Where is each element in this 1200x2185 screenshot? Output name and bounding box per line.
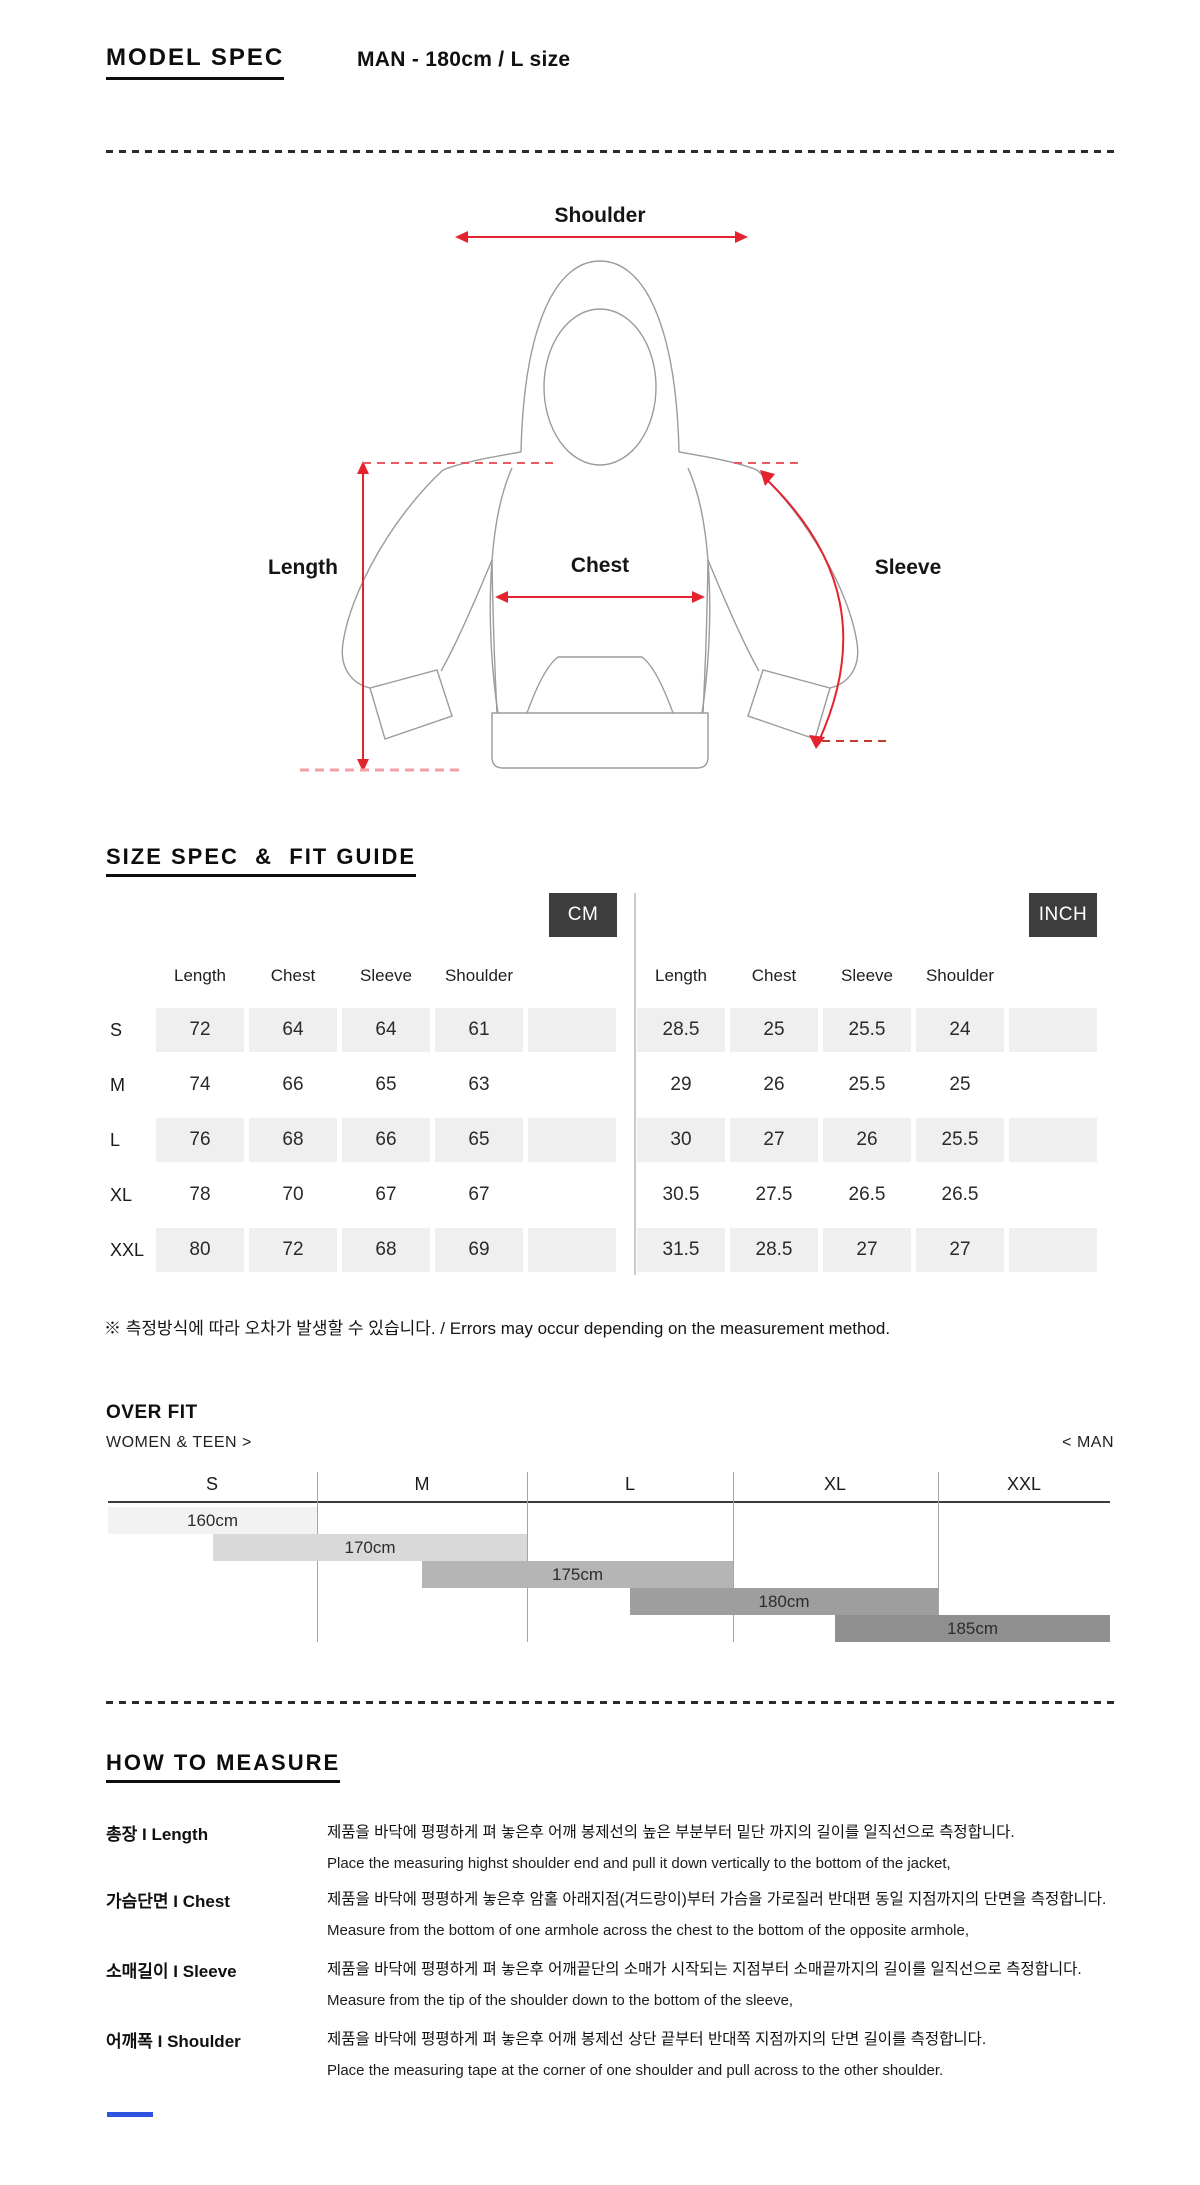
cell-empty (528, 1063, 616, 1107)
sleeve-arrow (764, 477, 843, 743)
fit-size-s: S (172, 1474, 252, 1495)
cell: 74 (156, 1063, 244, 1107)
cell: 68 (249, 1118, 337, 1162)
cell: 28.5 (637, 1008, 725, 1052)
row-label-m: M (110, 1063, 125, 1107)
length-label: Length (268, 556, 338, 579)
fit-bar-170cm: 170cm (213, 1534, 527, 1561)
model-subtitle: MAN - 180cm / L size (357, 48, 570, 72)
fit-chart-gridline (527, 1472, 528, 1642)
unit-badge-inch: INCH (1029, 893, 1097, 937)
table-row-inch: 28.5 25 25.5 24 (637, 1008, 1097, 1052)
fit-guide-left-label: WOMEN & TEEN > (106, 1434, 252, 1452)
table-row-cm: 78 70 67 67 (156, 1173, 616, 1217)
cell-empty (1009, 1118, 1097, 1162)
fit-guide-title: OVER FIT (106, 1402, 198, 1424)
measure-row-sleeve: 소매길이 I Sleeve 제품을 바닥에 평평하게 펴 놓은후 어깨끝단의 소… (106, 1957, 1114, 2013)
col-header: Shoulder (916, 966, 1004, 986)
cell: 64 (249, 1008, 337, 1052)
cell: 66 (249, 1063, 337, 1107)
fit-bar-175cm: 175cm (422, 1561, 733, 1588)
cell: 26.5 (823, 1173, 911, 1217)
dashed-divider-bottom (106, 1701, 1114, 1704)
cm-table-header: Length Chest Sleeve Shoulder (156, 966, 523, 986)
cell: 76 (156, 1118, 244, 1162)
cell: 63 (435, 1063, 523, 1107)
cell: 61 (435, 1008, 523, 1052)
col-header: Chest (249, 966, 337, 986)
measure-label: 총장 I Length (106, 1820, 208, 1845)
measure-row-length: 총장 I Length 제품을 바닥에 평평하게 펴 놓은후 어깨 봉제선의 높… (106, 1820, 1114, 1876)
cell: 28.5 (730, 1228, 818, 1272)
table-row-cm: 74 66 65 63 (156, 1063, 616, 1107)
size-spec-heading: SIZE SPEC & FIT GUIDE (106, 844, 416, 877)
table-row-inch: 30 27 26 25.5 (637, 1118, 1097, 1162)
table-row-cm: 72 64 64 61 (156, 1008, 616, 1052)
row-label-xxl: XXL (110, 1228, 144, 1272)
unit-badge-cm: CM (549, 893, 617, 937)
fit-size-xl: XL (795, 1474, 875, 1495)
cell: 65 (435, 1118, 523, 1162)
measurement-note: ※ 측정방식에 따라 오차가 발생할 수 있습니다. / Errors may … (104, 1314, 890, 1339)
cell: 67 (342, 1173, 430, 1217)
cell-empty (528, 1118, 616, 1162)
measure-desc-en: Measure from the tip of the shoulder dow… (327, 1989, 1114, 2013)
measure-annotations (300, 231, 888, 772)
cell: 25.5 (916, 1118, 1004, 1162)
cell: 24 (916, 1008, 1004, 1052)
sleeve-label: Sleeve (875, 556, 942, 579)
fit-bar-160cm: 160cm (108, 1507, 317, 1534)
col-header: Length (637, 966, 725, 986)
chest-label: Chest (571, 554, 629, 577)
cell-empty (528, 1173, 616, 1217)
how-to-measure-heading: HOW TO MEASURE (106, 1750, 340, 1783)
fit-bar-180cm: 180cm (630, 1588, 938, 1615)
cell: 80 (156, 1228, 244, 1272)
table-row-cm: 76 68 66 65 (156, 1118, 616, 1162)
cell: 72 (156, 1008, 244, 1052)
cell: 70 (249, 1173, 337, 1217)
measure-desc-en: Place the measuring tape at the corner o… (327, 2059, 1114, 2083)
measure-label: 소매길이 I Sleeve (106, 1957, 237, 1982)
cell: 26 (823, 1118, 911, 1162)
cell: 68 (342, 1228, 430, 1272)
cell-empty (528, 1228, 616, 1272)
cell-empty (528, 1008, 616, 1052)
cell: 29 (637, 1063, 725, 1107)
cell: 66 (342, 1118, 430, 1162)
cell-empty (1009, 1173, 1097, 1217)
fit-chart-gridline (733, 1472, 734, 1642)
measure-label: 어깨폭 I Shoulder (106, 2027, 241, 2052)
cell: 65 (342, 1063, 430, 1107)
cell: 27 (823, 1228, 911, 1272)
cell: 27.5 (730, 1173, 818, 1217)
cell-empty (1009, 1008, 1097, 1052)
fit-guide-right-label: < MAN (1062, 1434, 1114, 1452)
page-title: MODEL SPEC (106, 44, 284, 80)
measure-desc-kr: 제품을 바닥에 평평하게 펴 놓은후 어깨 봉제선의 높은 부분부터 밑단 까지… (327, 1820, 1114, 1845)
cell: 27 (730, 1118, 818, 1162)
fit-size-xxl: XXL (984, 1474, 1064, 1495)
row-label-s: S (110, 1008, 122, 1052)
measure-row-shoulder: 어깨폭 I Shoulder 제품을 바닥에 평평하게 펴 놓은후 어깨 봉제선… (106, 2027, 1114, 2083)
cell: 25.5 (823, 1063, 911, 1107)
table-row-inch: 29 26 25.5 25 (637, 1063, 1097, 1107)
dashed-divider-top (106, 150, 1114, 153)
inch-table-header: Length Chest Sleeve Shoulder (637, 966, 1004, 986)
cell: 25 (916, 1063, 1004, 1107)
hoodie-measure-diagram: Shoulder Length Chest Sleeve (0, 165, 1200, 800)
measure-row-chest: 가슴단면 I Chest 제품을 바닥에 평평하게 놓은후 암홀 아래지점(겨드… (106, 1887, 1114, 1943)
bottom-blue-mark (107, 2112, 153, 2117)
measure-desc-kr: 제품을 바닥에 평평하게 펴 놓은후 어깨끝단의 소매가 시작되는 지점부터 소… (327, 1957, 1114, 1982)
row-label-l: L (110, 1118, 120, 1162)
cell: 25 (730, 1008, 818, 1052)
fit-bar-185cm: 185cm (835, 1615, 1110, 1642)
table-row-inch: 31.5 28.5 27 27 (637, 1228, 1097, 1272)
cell: 30 (637, 1118, 725, 1162)
cell-empty (1009, 1063, 1097, 1107)
cell: 26.5 (916, 1173, 1004, 1217)
measure-desc-en: Measure from the bottom of one armhole a… (327, 1919, 1114, 1943)
fit-size-l: L (590, 1474, 670, 1495)
table-divider (634, 893, 636, 1275)
cell: 27 (916, 1228, 1004, 1272)
cell: 67 (435, 1173, 523, 1217)
cell: 25.5 (823, 1008, 911, 1052)
cell: 69 (435, 1228, 523, 1272)
cell: 31.5 (637, 1228, 725, 1272)
measure-desc-kr: 제품을 바닥에 평평하게 놓은후 암홀 아래지점(겨드랑이)부터 가슴을 가로질… (327, 1887, 1114, 1912)
col-header: Chest (730, 966, 818, 986)
col-header: Shoulder (435, 966, 523, 986)
row-label-xl: XL (110, 1173, 132, 1217)
cell: 64 (342, 1008, 430, 1052)
measure-desc-kr: 제품을 바닥에 평평하게 펴 놓은후 어깨 봉제선 상단 끝부터 반대쪽 지점까… (327, 2027, 1114, 2052)
cell-empty (1009, 1228, 1097, 1272)
cell: 72 (249, 1228, 337, 1272)
measure-desc-en: Place the measuring highst shoulder end … (327, 1852, 1114, 1876)
col-header: Length (156, 966, 244, 986)
col-header: Sleeve (823, 966, 911, 986)
table-row-cm: 80 72 68 69 (156, 1228, 616, 1272)
cell: 26 (730, 1063, 818, 1107)
fit-size-m: M (382, 1474, 462, 1495)
shoulder-label: Shoulder (554, 204, 645, 227)
size-guide-page: MODEL SPEC MAN - 180cm / L size (0, 0, 1200, 2185)
fit-chart-rule (108, 1501, 1110, 1503)
hoodie-outline (342, 261, 857, 768)
cell: 30.5 (637, 1173, 725, 1217)
measure-label: 가슴단면 I Chest (106, 1887, 230, 1912)
cell: 78 (156, 1173, 244, 1217)
col-header: Sleeve (342, 966, 430, 986)
table-row-inch: 30.5 27.5 26.5 26.5 (637, 1173, 1097, 1217)
